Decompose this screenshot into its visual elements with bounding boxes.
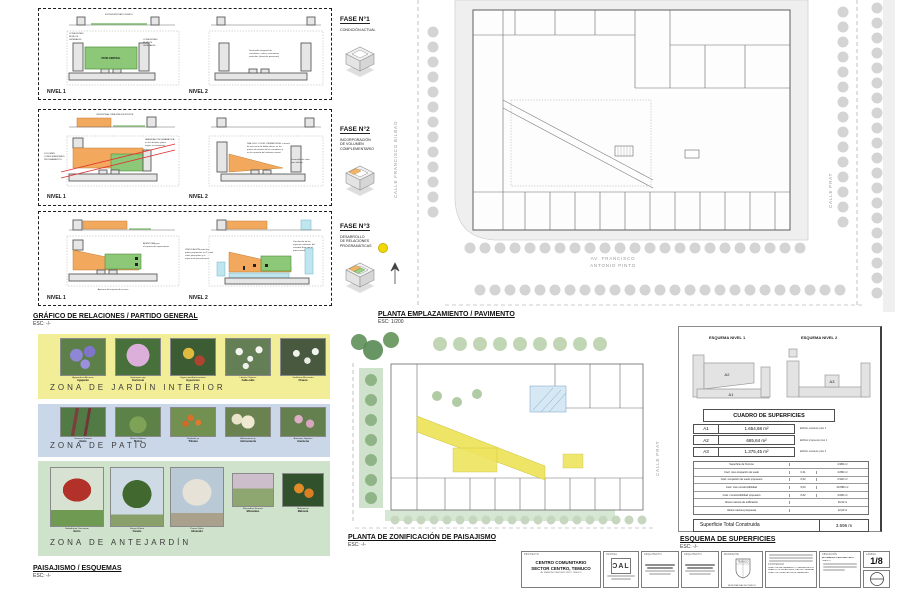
fase2-block: FASE N°2 INCORPORACIÓNDE VOLUMENCOMPLEME… bbox=[340, 118, 380, 210]
esquema-nivel2-header: ESQUEMA NIVEL 2 bbox=[801, 335, 837, 340]
area-label-a3: A3 bbox=[830, 379, 836, 384]
label-volumen: VOLUMEN bbox=[44, 153, 55, 155]
zone-jardin-interior: Agapanthus AfricanusAgapanto Hydrangea s… bbox=[38, 334, 330, 399]
plant-photo bbox=[60, 407, 106, 437]
area-label-a1: A1 bbox=[729, 392, 735, 397]
table-row: A11.654,68 m² Edificio existente piso 1 bbox=[693, 424, 869, 434]
fase1-title: FASE N°1 bbox=[340, 16, 370, 24]
fase3-diagram: APERTURA para el espacio de exposiciones… bbox=[39, 212, 329, 303]
svg-text:LATERALES: LATERALES bbox=[69, 38, 82, 41]
site-plan: CALLE FRANCISCO BILBAO CALLE PRAT AV. FR… bbox=[385, 0, 895, 312]
svg-text:para talleres: para talleres bbox=[291, 161, 304, 164]
cuadro-title: CUADRO DE SUPERFICIES bbox=[703, 409, 835, 422]
svg-text:verticales (situación provisor: verticales (situación provisoria) bbox=[249, 55, 279, 58]
fase2-iso-icon bbox=[340, 155, 380, 205]
svg-text:TEMUCO: TEMUCO bbox=[737, 560, 748, 564]
titleblock-arquitecto-1: ARQUITECTO bbox=[641, 551, 679, 588]
temuco-shield-icon: TEMUCO bbox=[722, 556, 764, 580]
plant-photo bbox=[225, 407, 271, 437]
paisajismo-title: PAISAJISMO / ESQUEMAS bbox=[33, 565, 122, 572]
svg-text:espacios interiores del: espacios interiores del bbox=[293, 243, 315, 246]
avenue-label-line2: ANTONIO PINTO bbox=[590, 263, 636, 268]
zone-antejardin: Embothrium CoccineumNotro Drimys Winteri… bbox=[38, 461, 330, 556]
fase1-block: FASE N°1 CONDICIÓN ACTUAL bbox=[340, 8, 380, 91]
street-label-bilbao: CALLE FRANCISCO BILBAO bbox=[393, 121, 398, 198]
fase2-diagram: RESPETA ALTURA PRE-EXISTENTE VOLUMEN COM… bbox=[39, 110, 329, 203]
table-row: Superficie de Terreno4.983 m² bbox=[694, 462, 868, 470]
fase3-subtitle: DESARROLLODE RELACIONESPROGRAMÁTICAS bbox=[340, 235, 380, 249]
table-row: A31.375,45 m² Edificio existente piso 2 bbox=[693, 447, 869, 457]
fase3-iso-icon bbox=[340, 252, 380, 302]
grafico-scale: ESC: -/- bbox=[33, 321, 198, 327]
plant-photo bbox=[232, 473, 274, 507]
fase1-diagram: EXTENSIÓN PATIO RÍGIDO CONEXIONES RÍGIDO… bbox=[39, 9, 329, 97]
svg-text:espacio de permanencia: espacio de permanencia bbox=[185, 257, 210, 260]
fase3-block: FASE N°3 DESARROLLODE RELACIONESPROGRAMÁ… bbox=[340, 215, 380, 307]
plant-photo bbox=[115, 407, 161, 437]
zone-name-jardin: ZONA DE JARDÍN INTERIOR bbox=[50, 383, 226, 392]
label-nivel2: NIVEL 2 bbox=[189, 194, 208, 200]
grafico-title-block: GRÁFICO DE RELACIONES / PARTIDO GENERAL … bbox=[33, 313, 198, 327]
label-nivel1: NIVEL 1 bbox=[47, 194, 66, 200]
svg-text:RÍGIDOS: RÍGIDOS bbox=[69, 35, 79, 38]
zoning-title-block: PLANTA DE ZONIFICACIÓN DE PAISAJISMO ESC… bbox=[348, 534, 496, 548]
esquema-schematics: A2 A1 A3 bbox=[681, 341, 879, 403]
landscape-panel: Agapanthus AfricanusAgapanto Hydrangea s… bbox=[38, 334, 330, 558]
label-extension-patio: EXTENSIÓN PATIO RÍGIDO bbox=[105, 13, 133, 16]
cuadro-superficies: CUADRO DE SUPERFICIES A11.654,68 m² Edif… bbox=[693, 409, 869, 532]
table-row: A2665,64 m² Edificio propuesto piso 1 bbox=[693, 435, 869, 445]
plant-photo bbox=[50, 467, 104, 527]
note-salas: Desarrollo de salas bbox=[291, 158, 311, 161]
north-arrow-icon bbox=[391, 263, 399, 284]
fase2-diagram-panel: RESPETA ALTURA PRE-EXISTENTE VOLUMEN COM… bbox=[38, 109, 332, 206]
svg-text:PROGRAMÁTICO: PROGRAMÁTICO bbox=[44, 158, 62, 161]
label-acceso: Apertura del espacio de acceso bbox=[98, 288, 129, 291]
label-nivel2: NIVEL 2 bbox=[189, 89, 208, 95]
zone-name-antejardin: ZONA DE ANTEJARDÍN bbox=[50, 538, 191, 547]
esquema-nivel1-header: ESQUEMA NIVEL 1 bbox=[709, 335, 745, 340]
zoning-scale: ESC: -/- bbox=[348, 542, 496, 548]
titleblock-arquitecto-2: ARQUITECTO bbox=[681, 551, 719, 588]
svg-text:el espacio de exposiciones: el espacio de exposiciones bbox=[143, 246, 170, 248]
total-row: Superficie Total Construida 3.696 m bbox=[693, 519, 869, 532]
site-plan-scale: ESC: 1/200 bbox=[378, 319, 515, 325]
svg-text:corredor Este con el: corredor Este con el bbox=[293, 246, 313, 249]
zone-name-patio: ZONA DE PATIO bbox=[50, 441, 149, 450]
label-patio-central: PATIO CENTRAL bbox=[101, 57, 121, 60]
dal-logo: ƆAL bbox=[611, 558, 631, 574]
svg-text:patios propuestos en 2° nivel,: patios propuestos en 2° nivel, bbox=[185, 251, 214, 254]
svg-text:en los distintos patios: en los distintos patios bbox=[145, 141, 167, 144]
titleblock-mandante: MANDANTE TEMUCO MUNICIPALIDAD DE TEMUCO bbox=[721, 551, 763, 588]
street-label-prat: CALLE PRAT bbox=[828, 173, 833, 208]
area-label-a2: A2 bbox=[725, 372, 731, 377]
label-conexiones-der: CONEXIONES bbox=[143, 39, 158, 41]
plant-photo bbox=[60, 338, 106, 376]
plant-photo bbox=[170, 467, 224, 527]
avenue-label-line1: AV. FRANCISCO bbox=[591, 256, 636, 261]
fase3-title: FASE N°3 bbox=[340, 223, 370, 231]
plant-photo bbox=[110, 467, 164, 527]
svg-text:de una serie de doble alturas: de una serie de doble alturas en los bbox=[247, 145, 283, 148]
detail-table: Superficie de Terreno4.983 m² Coef. max … bbox=[693, 461, 869, 515]
table-row: Coef. max constructibilidad6,0026.898 m² bbox=[694, 484, 868, 492]
table-row: Coef. constructibilidad propuesto0,623.6… bbox=[694, 492, 868, 500]
note-dialogo: DIÁLOGO CON EL PRIMER NIVEL a través bbox=[247, 142, 291, 145]
building-footprint bbox=[473, 10, 790, 230]
street-label-prat-zoning: CALLE PRAT bbox=[655, 441, 660, 476]
label-variedad: VARIEDAD PROGRAMÁTICA bbox=[145, 138, 175, 141]
svg-text:en la conexión del volumen cen: en la conexión del volumen central bbox=[247, 151, 281, 154]
table-row: Coef. max ocupación de suelo0,414.080 m² bbox=[694, 469, 868, 477]
svg-text:puntos de remate de los corred: puntos de remate de los corredores y bbox=[247, 148, 284, 151]
grafico-title: GRÁFICO DE RELACIONES / PARTIDO GENERAL bbox=[33, 313, 198, 320]
titleblock-ubicacion: UBICACIÓN AV. FRANCISCO ANTONIO PINTO TE… bbox=[819, 551, 861, 588]
superficies-title: ESQUEMA DE SUPERFICIES bbox=[680, 536, 775, 543]
label-respeta-altura: RESPETA ALTURA PRE-EXISTENTE bbox=[97, 113, 134, 116]
table-row: Altura maxima de edificación31/10 m bbox=[694, 499, 868, 507]
paisajismo-scale: ESC: -/- bbox=[33, 573, 122, 579]
label-apertura: APERTURA para bbox=[143, 242, 161, 245]
fase2-title: FASE N°2 bbox=[340, 126, 370, 134]
superficies-title-block: ESQUEMA DE SUPERFICIES ESC: -/- bbox=[680, 536, 775, 550]
titleblock-compass bbox=[863, 570, 890, 588]
site-plan-title-block: PLANTA EMPLAZAMIENTO / PAVIMENTO ESC: 1/… bbox=[378, 311, 515, 325]
note-vinculacion-este: Vinculación de los bbox=[293, 241, 311, 243]
paisajismo-title-block: PAISAJISMO / ESQUEMAS ESC: -/- bbox=[33, 565, 122, 579]
titleblock-proyecto: PROYECTO CENTRO COMUNITARIOSECTOR CENTRO… bbox=[521, 551, 601, 588]
svg-text:según su orientación: según su orientación bbox=[145, 144, 166, 147]
compass-icon bbox=[869, 571, 885, 587]
titleblock-lamina-column: LÁMINA 1/8 bbox=[863, 551, 890, 588]
sheet-number: 1/8 bbox=[864, 556, 889, 566]
titleblock: PROYECTO CENTRO COMUNITARIOSECTOR CENTRO… bbox=[521, 551, 890, 588]
superficies-panel: ESQUEMA NIVEL 1 ESQUEMA NIVEL 2 A2 A1 A3… bbox=[678, 326, 882, 532]
zone-patio: Gunnera TinctoriaNalca Melica ViolaceaMe… bbox=[38, 404, 330, 457]
site-plan-title: PLANTA EMPLAZAMIENTO / PAVIMENTO bbox=[378, 311, 515, 318]
plant-photo bbox=[280, 338, 326, 376]
zoning-title: PLANTA DE ZONIFICACIÓN DE PAISAJISMO bbox=[348, 534, 496, 541]
plant-photo bbox=[280, 407, 326, 437]
fase1-subtitle: CONDICIÓN ACTUAL bbox=[340, 28, 380, 33]
svg-text:RÍGIDOS: RÍGIDOS bbox=[143, 41, 153, 44]
fase2-subtitle: INCORPORACIÓNDE VOLUMENCOMPLEMENTARIO bbox=[340, 138, 380, 152]
note-nivel2: Desarrollo ortogonal de bbox=[249, 49, 273, 52]
plant-photo bbox=[282, 473, 324, 507]
superficies-scale: ESC: -/- bbox=[680, 544, 775, 550]
plant-photo bbox=[170, 338, 216, 376]
svg-text:salas principales y el: salas principales y el bbox=[185, 254, 206, 257]
svg-text:patio central: patio central bbox=[293, 249, 305, 252]
titleblock-oficina: OFICINA ƆAL bbox=[603, 551, 639, 588]
label-nivel2: NIVEL 2 bbox=[189, 295, 208, 301]
zoning-plan: CALLE PRAT bbox=[345, 328, 665, 533]
table-row: Coef. ocupación de suelo propuesto0,522.… bbox=[694, 477, 868, 485]
plant-photo bbox=[225, 338, 271, 376]
fase1-iso-icon bbox=[340, 36, 380, 86]
titleblock-contenido: CONTENIDO PLANO DE EMPLAZAMIENTO / PAVIM… bbox=[765, 551, 817, 588]
label-conexiones: CONEXIONES bbox=[69, 33, 84, 35]
table-row: Altura maxima propuesta12,00 m bbox=[694, 507, 868, 514]
svg-text:corredores, salas y conexiones: corredores, salas y conexiones bbox=[249, 52, 280, 55]
architecture-sheet: { "sections": { "grafico": {"title": "GR… bbox=[0, 0, 900, 600]
plant-photo bbox=[115, 338, 161, 376]
label-nivel1: NIVEL 1 bbox=[47, 295, 66, 301]
fase1-diagram-panel: EXTENSIÓN PATIO RÍGIDO CONEXIONES RÍGIDO… bbox=[38, 8, 332, 100]
svg-text:COMPLEMENTARIO: COMPLEMENTARIO bbox=[44, 155, 65, 158]
titleblock-lamina: LÁMINA 1/8 bbox=[863, 551, 890, 568]
label-nivel1: NIVEL 1 bbox=[47, 89, 66, 95]
svg-text:LATERALES: LATERALES bbox=[143, 44, 156, 47]
plant-photo bbox=[170, 407, 216, 437]
note-vinculacion: VINCULACIÓN entre los bbox=[185, 248, 210, 251]
fase3-diagram-panel: APERTURA para el espacio de exposiciones… bbox=[38, 211, 332, 306]
